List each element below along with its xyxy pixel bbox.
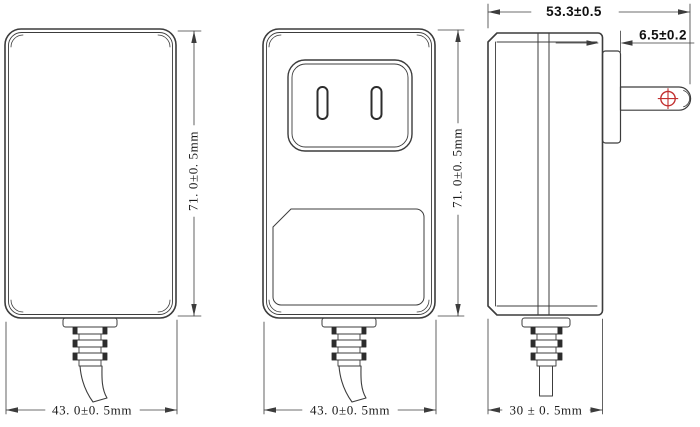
arrow-left [264,407,276,412]
back-view [263,29,435,402]
arrow-up [455,30,460,42]
arrow-down [191,304,196,316]
side-depth-label: 30 ± 0. 5mm [510,403,583,418]
front-view [5,29,176,402]
side-view [488,33,691,396]
adapter-dimension-drawing: 71. 0±0. 5mm 43. 0±0. 5mm 71. 0±0. 5mm [0,0,700,427]
blade-face-label: 6.5±0.2 [639,28,687,43]
arrow-right [678,9,690,14]
side-body-edge-lines [496,42,598,306]
front-body-inner-outline [9,33,173,315]
arrow-left-tip [621,40,633,45]
side-cord-collar [522,318,570,327]
plug-face-plate [603,51,621,143]
front-corner-arc [158,300,170,312]
dim-blade-face: 6.5±0.2 [556,28,694,53]
arrow-left [488,9,500,14]
back-body-inner-outline [267,33,432,315]
arrow-right-tip [587,40,599,45]
blade-slot-right [372,87,382,119]
dim-front-height: 71. 0±0. 5mm [178,31,201,316]
back-width-label: 43. 0±0. 5mm [310,403,390,418]
back-corner-arc [269,35,281,47]
back-corner-arc [417,35,429,47]
ac-blade [621,87,691,110]
front-corner-arc [11,300,23,312]
arrow-left [6,407,18,412]
arrow-right [591,407,603,412]
front-body-outline [5,29,176,318]
case-seam-lines [538,33,549,315]
side-strain-relief [531,327,562,366]
side-overall-width-label: 53.3±0.5 [546,4,602,19]
drawing-canvas: 71. 0±0. 5mm 43. 0±0. 5mm 71. 0±0. 5mm [0,0,700,427]
arrow-left [488,407,500,412]
back-height-label: 71. 0±0. 5mm [450,128,465,208]
front-strain-relief-and-cord [63,318,117,402]
arrow-down [455,304,460,316]
front-corner-arc [11,35,23,47]
front-width-label: 43. 0±0. 5mm [52,403,132,418]
arrow-right [424,407,436,412]
dim-back-height: 71. 0±0. 5mm [438,30,465,316]
socket-recess-outline [288,60,412,151]
front-height-label: 71. 0±0. 5mm [186,131,201,211]
blade-center-mark-icon [658,88,678,109]
arrow-up [191,31,196,43]
label-area-outline [273,209,424,305]
back-strain-relief-and-cord [322,318,376,402]
blade-slot-left [318,87,328,119]
front-corner-arc [158,35,170,47]
socket-recess-inner-outline [292,64,408,147]
arrow-right [165,407,177,412]
side-power-cord [540,366,553,396]
side-body-outline [488,33,603,315]
